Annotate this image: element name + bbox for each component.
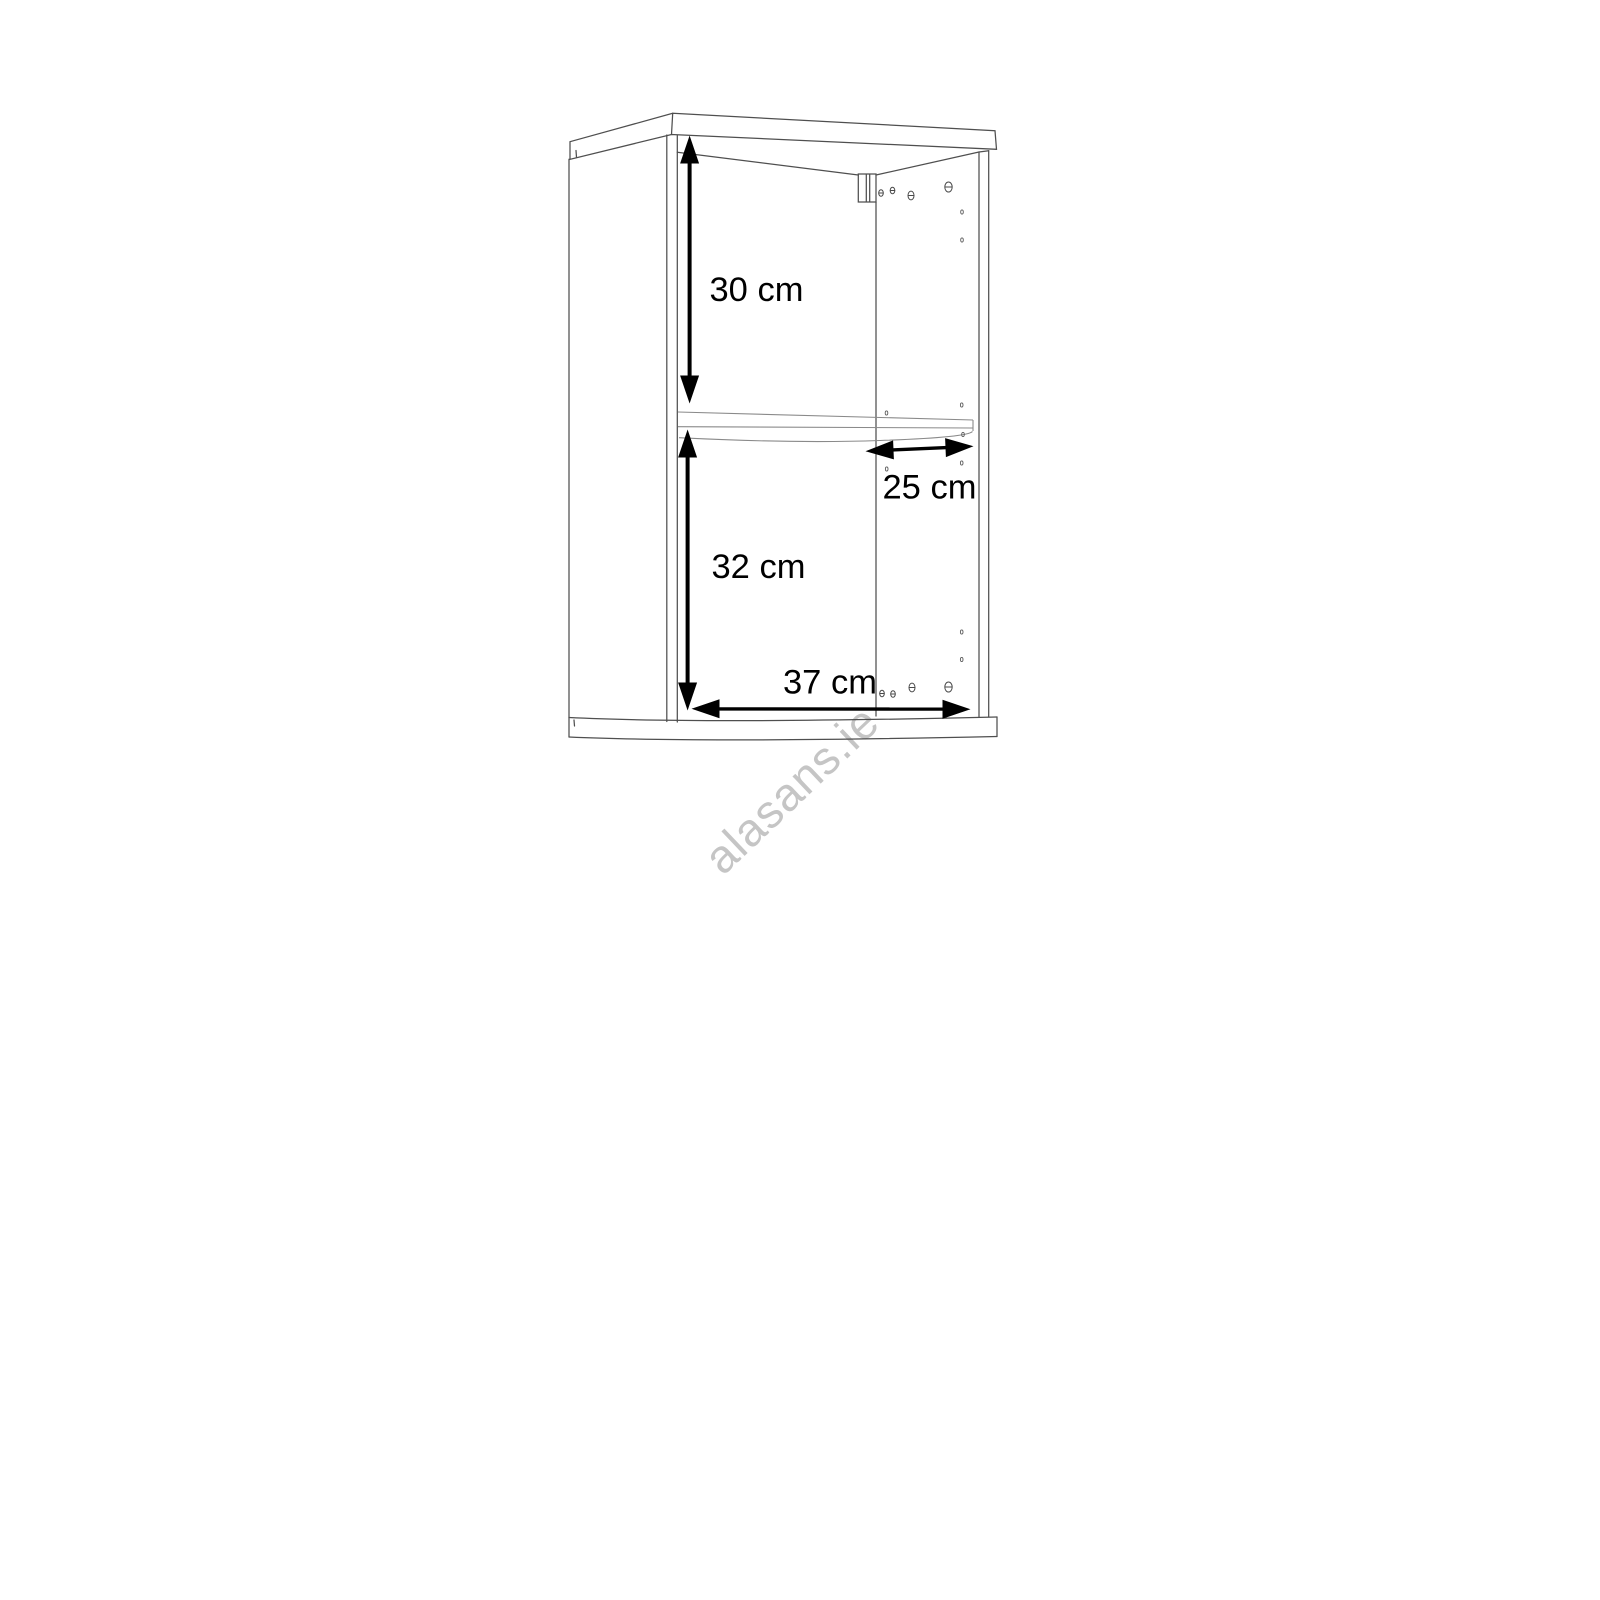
arrowhead-right-icon — [943, 700, 971, 719]
pin-hole — [960, 403, 963, 407]
dimension-label: 32 cm — [712, 548, 806, 586]
watermark-text: alasans.ie — [694, 695, 889, 884]
screw-hole — [945, 682, 953, 692]
top-panel — [570, 113, 997, 159]
shelf — [678, 412, 973, 442]
arrowhead-right-icon — [945, 438, 973, 457]
pin-hole — [961, 210, 964, 214]
arrowhead-up-icon — [678, 430, 697, 458]
panel-end-mark — [576, 151, 577, 158]
dimension-upper-compartment-height: 30 cm — [680, 136, 803, 404]
pin-hole — [960, 630, 963, 634]
pin-hole — [885, 411, 888, 415]
dimension-shelf-depth: 25 cm — [866, 438, 977, 506]
dimension-label: 37 cm — [783, 664, 877, 702]
bottom-panel — [569, 717, 997, 740]
wall-mount-bracket — [858, 174, 876, 202]
screw-holes-top-row — [878, 182, 952, 200]
screw-hole — [945, 182, 953, 192]
panel-end-mark — [574, 720, 575, 726]
arrowhead-up-icon — [680, 136, 699, 164]
screw-hole — [879, 690, 884, 697]
arrowhead-down-icon — [678, 683, 697, 711]
screw-hole — [878, 190, 883, 197]
screw-hole — [890, 187, 895, 194]
screw-hole — [890, 691, 895, 698]
left-side-panel — [569, 135, 677, 722]
ceiling-edges — [677, 152, 979, 175]
arrowhead-down-icon — [680, 376, 699, 404]
pin-hole — [961, 238, 964, 242]
cabinet-dimension-diagram: alasans.ie — [0, 0, 1600, 1600]
cabinet-outline — [569, 113, 997, 740]
dimension-label: 30 cm — [710, 271, 804, 309]
pin-hole — [960, 461, 963, 465]
screw-holes-bottom-row — [879, 682, 952, 697]
screw-hole — [909, 683, 916, 692]
page: alasans.ie — [0, 0, 1600, 1600]
pin-hole — [960, 657, 963, 661]
dimension-label: 25 cm — [883, 469, 977, 507]
arrowhead-left-icon — [692, 699, 720, 718]
screw-hole — [908, 191, 915, 200]
dimension-interior-width: 37 cm — [692, 664, 971, 719]
arrowhead-left-icon — [866, 440, 894, 459]
right-side-panel — [979, 151, 989, 717]
